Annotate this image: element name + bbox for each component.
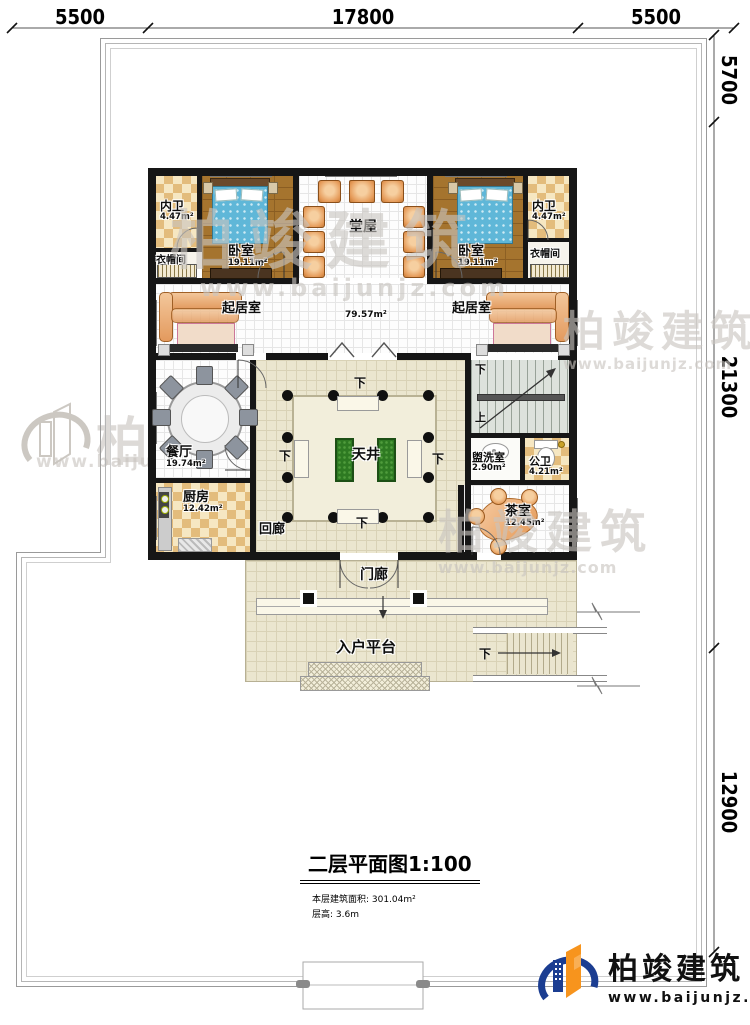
side-table	[476, 344, 488, 356]
stove-burner	[161, 506, 169, 514]
wall	[148, 552, 340, 560]
column	[423, 472, 434, 483]
tv-console	[166, 344, 238, 352]
nightstand	[513, 182, 523, 194]
courtyard-step	[294, 440, 309, 478]
column	[282, 390, 293, 401]
nav-down: 下	[354, 374, 366, 391]
side-table	[158, 344, 170, 356]
logo-icon	[538, 938, 600, 1012]
entry-steps	[300, 676, 430, 691]
wall	[148, 168, 577, 176]
sheet-title: 二层平面图1:100	[300, 848, 480, 884]
nav-down: 下	[356, 514, 368, 531]
wall	[148, 478, 250, 483]
central-area-label: 79.57m²	[345, 311, 387, 320]
room-label-dining: 餐厅19.74m²	[166, 446, 205, 469]
wardrobe-right	[530, 264, 570, 278]
logo-site-text: www.baijunjz.com	[608, 990, 750, 1006]
side-table	[242, 344, 254, 356]
room-label-porch: 门廊	[360, 568, 388, 583]
column	[423, 390, 434, 401]
wall	[523, 168, 528, 283]
nav-down: 下	[279, 447, 291, 464]
stove-burner	[161, 495, 169, 503]
entry-steps	[308, 662, 422, 677]
room-label-living-left: 起居室	[222, 302, 261, 316]
watermark-bottom: 柏竣建筑 www.baijunjz.com	[438, 496, 654, 577]
dining-chair	[152, 409, 171, 426]
wall	[520, 438, 525, 480]
wall	[250, 360, 256, 552]
room-label-toilet: 公卫4.21m²	[529, 456, 563, 476]
room-label-neiwei-right: 内卫4.47m²	[532, 200, 566, 222]
courtyard-step	[337, 396, 379, 411]
nav-down-ext: 下	[479, 645, 491, 662]
ext-stair-treads	[507, 633, 573, 674]
porch-column	[300, 590, 317, 607]
dining-chair	[196, 366, 213, 385]
tv-console	[488, 344, 560, 352]
wall	[397, 353, 471, 360]
wall	[266, 353, 328, 360]
room-label-corridor: 回廊	[259, 523, 285, 537]
dining-chair	[239, 409, 258, 426]
room-label-courtyard: 天井	[352, 448, 380, 463]
column	[423, 432, 434, 443]
rug	[177, 323, 235, 345]
watermark-center: 柏竣建筑 www.baijunjz.com	[170, 190, 509, 302]
sheet-area-note: 本层建筑面积: 301.04m²	[312, 892, 480, 905]
room-label-cloak-right: 衣帽间	[530, 250, 560, 261]
courtyard-step	[407, 440, 422, 478]
column	[282, 432, 293, 443]
rug	[493, 323, 551, 345]
porch-column	[410, 590, 427, 607]
nav-down: 下	[475, 361, 486, 377]
sofa-seat	[489, 308, 557, 323]
nav-up: 上	[475, 409, 486, 425]
stair-handrail	[477, 394, 565, 401]
sheet-height-note: 层高: 3.6m	[312, 907, 480, 920]
wall	[148, 168, 156, 560]
room-label-washroom: 盥洗室2.90m²	[472, 452, 506, 472]
floorplan-sheet: 柏竣建筑 www.baijunjz.com	[0, 0, 750, 1025]
title-block: 二层平面图1:100 本层建筑面积: 301.04m² 层高: 3.6m	[300, 848, 480, 920]
brand-logo: 柏竣建筑 www.baijunjz.com	[538, 938, 750, 1012]
watermark-right: 柏竣建筑 www.baijunjz.com	[563, 298, 750, 373]
column	[282, 472, 293, 483]
kitchen-mat	[178, 538, 212, 552]
wall	[528, 238, 577, 242]
wall	[465, 480, 577, 485]
logo-brand-text: 柏竣建筑	[608, 944, 750, 988]
dining-table-top	[181, 395, 229, 443]
room-label-kitchen: 厨房12.42m²	[183, 491, 222, 514]
room-label-platform: 入户平台	[336, 640, 396, 656]
column	[423, 512, 434, 523]
pull-cord	[558, 441, 565, 448]
ext-stair-rail	[473, 675, 607, 682]
nav-down: 下	[432, 450, 444, 467]
room-label-living-right: 起居室	[452, 302, 491, 316]
